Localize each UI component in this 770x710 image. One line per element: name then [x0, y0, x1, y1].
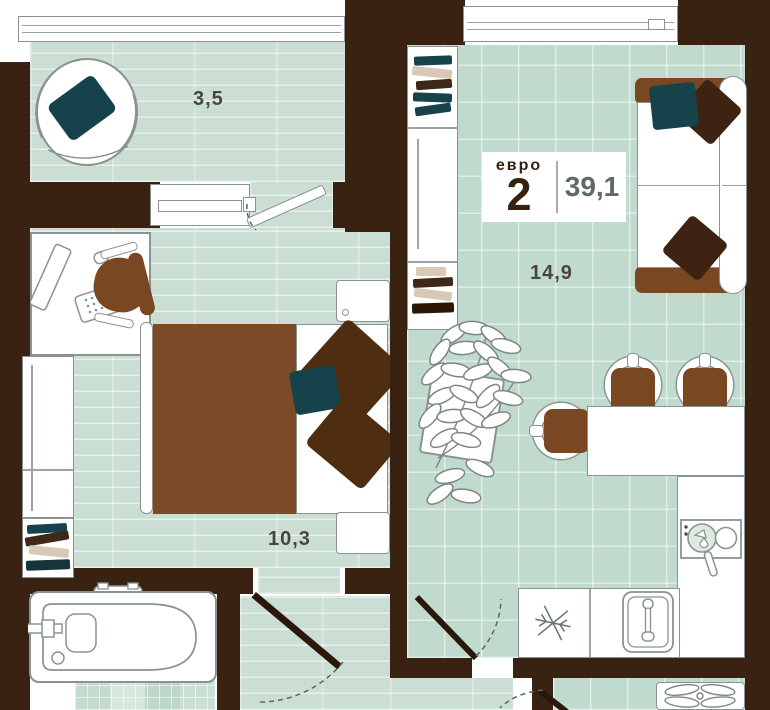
papasan-armchair — [30, 52, 145, 172]
bathtub — [28, 582, 220, 686]
wall-main-vertical — [390, 228, 407, 658]
refrigerator-snowflake-icon — [532, 602, 574, 644]
wall-balcony-bottom-right — [333, 182, 407, 228]
sofa — [635, 76, 747, 296]
wall-right-outer — [745, 45, 770, 710]
bedroom-doorway-floor — [258, 568, 345, 594]
wall-balcony-bottom-left — [0, 182, 160, 228]
window-vent-tick — [648, 19, 665, 30]
wall-top-center-block — [345, 0, 465, 45]
unit-badge: евро 2 39,1 — [482, 152, 626, 222]
wardrobe — [22, 356, 74, 518]
bed-blanket — [153, 324, 296, 514]
nightstand-bottom — [336, 512, 390, 554]
apartment-floor-plan: 3,5 10,3 — [0, 0, 770, 710]
living-window — [463, 6, 678, 42]
badge-total-area: 39,1 — [558, 171, 626, 203]
double-bed — [140, 320, 390, 516]
dining-chair-3 — [532, 402, 590, 460]
badge-room-count: 2 — [482, 172, 556, 217]
balcony-window — [18, 16, 345, 42]
kitchen-sink — [621, 590, 675, 654]
entry-threshold — [513, 678, 532, 710]
bedroom-door-jamb-right — [340, 568, 345, 594]
bed-footboard — [140, 322, 153, 514]
hallway-floor-2 — [390, 678, 513, 710]
hallway-rack-leaves — [658, 682, 744, 710]
potted-plant — [410, 318, 545, 533]
stove-with-pan — [680, 516, 744, 582]
bedroom-door-jamb-left — [253, 568, 258, 594]
balcony-inner-window — [150, 184, 250, 226]
kitchen-doorway-gap — [472, 658, 513, 678]
sofa-pillow-teal — [649, 82, 699, 131]
dining-table — [587, 406, 745, 476]
wall-kitchen-bottom-left — [390, 658, 472, 678]
hallway-floor — [240, 596, 390, 710]
nightstand-top — [336, 280, 390, 322]
wall-bedroom-bottom-right — [345, 568, 390, 594]
balcony-window-sill — [243, 197, 256, 212]
living-area-label: 14,9 — [530, 262, 573, 285]
balcony-area-label: 3,5 — [193, 88, 224, 111]
living-bookcase — [407, 46, 458, 330]
bedroom-bookshelf — [22, 518, 74, 578]
wall-bathroom-right — [217, 568, 240, 710]
bedroom-area-label: 10,3 — [268, 528, 311, 551]
wall-top-right-block — [678, 0, 770, 45]
wall-kitchen-bottom-right — [513, 658, 770, 678]
